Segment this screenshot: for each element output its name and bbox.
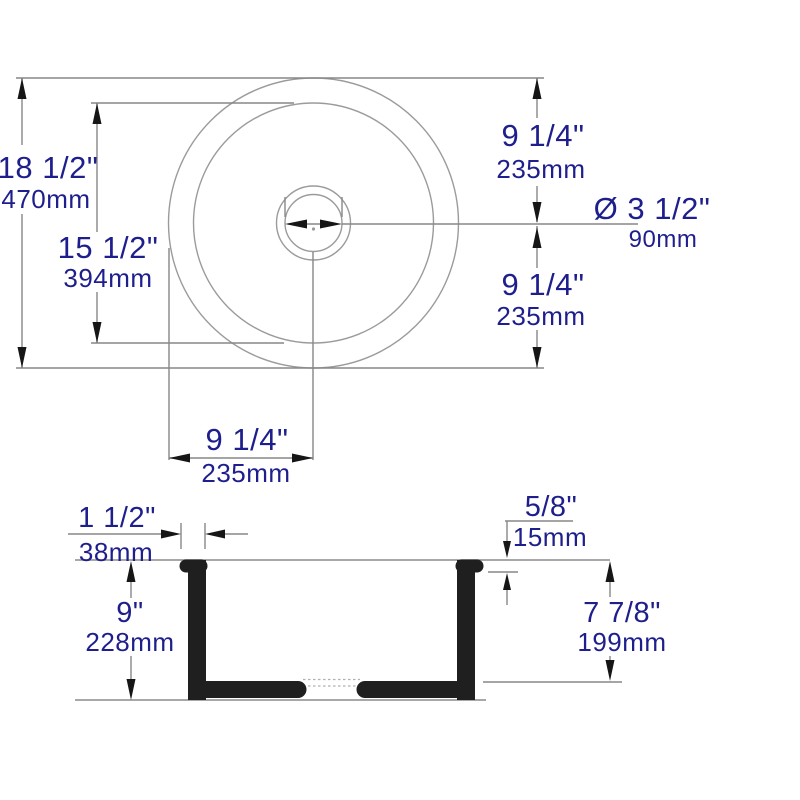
interior-depth-inches-label: 7 7/8" [583,597,661,629]
overall-depth-mm-label: 228mm [85,627,174,657]
radius-bottom-inches-label: 9 1/4" [502,267,585,302]
rim-width-inches-label: 1 1/2" [78,502,156,534]
drain-diameter-inches-label: Ø 3 1/2" [594,191,711,226]
interior-depth-mm-label: 199mm [577,627,666,657]
radius-bottom-mm-label: 235mm [496,301,585,331]
technical-drawing-svg: 18 1/2" 470mm 15 1/2" 394mm 9 1/4" 235mm… [0,0,800,800]
center-mark [312,227,315,230]
rim-width-mm-label: 38mm [79,537,153,567]
rim-thickness-mm-label: 15mm [513,522,587,552]
basin-diameter-mm-label: 394mm [63,263,152,293]
overall-diameter-mm-label: 470mm [1,184,90,214]
drawing-canvas: 18 1/2" 470mm 15 1/2" 394mm 9 1/4" 235mm… [0,0,800,800]
radius-horizontal-mm-label: 235mm [201,458,290,488]
rim-thickness-inches-label: 5/8" [525,491,578,523]
overall-depth-inches-label: 9" [116,597,143,629]
radius-horizontal-inches-label: 9 1/4" [206,422,289,457]
canvas-background [0,0,800,800]
drain-diameter-mm-label: 90mm [629,226,698,253]
radius-top-mm-label: 235mm [496,154,585,184]
basin-diameter-inches-label: 15 1/2" [58,230,159,265]
overall-diameter-inches-label: 18 1/2" [0,150,98,185]
radius-top-inches-label: 9 1/4" [502,118,585,153]
